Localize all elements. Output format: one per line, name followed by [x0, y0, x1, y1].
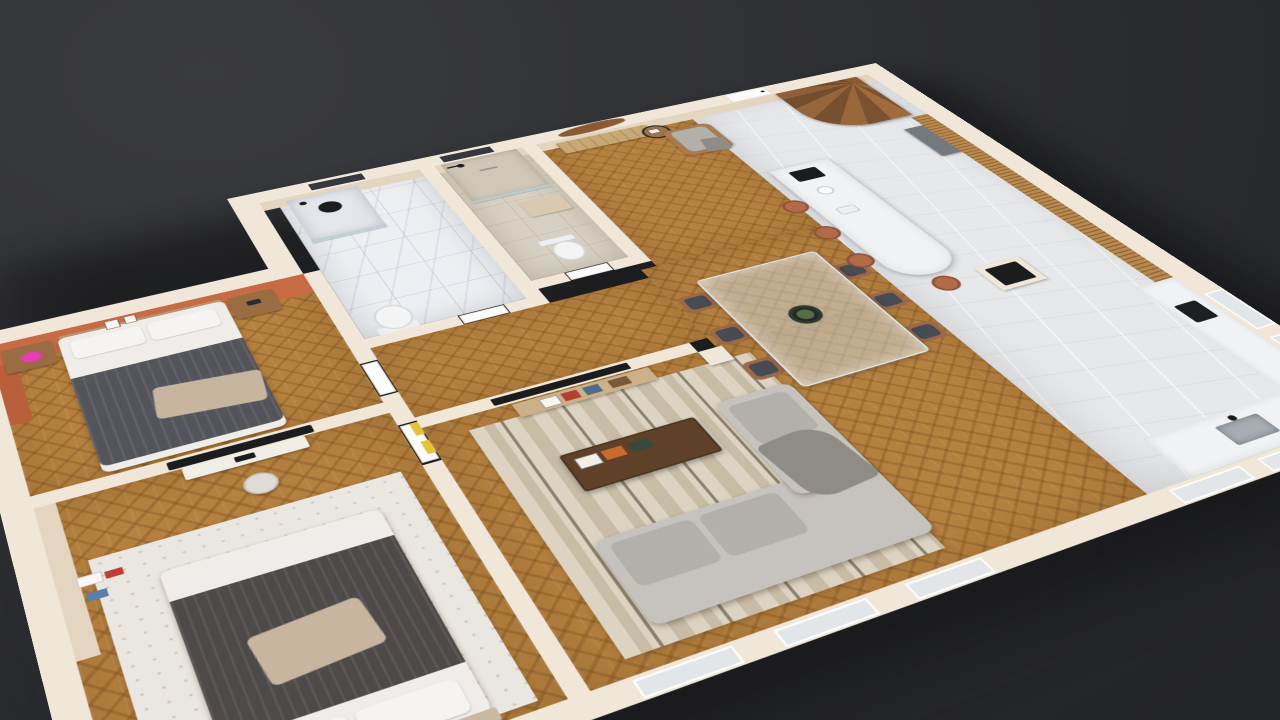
apartment-floor-plan: [0, 63, 1280, 720]
render-scene: [0, 0, 1280, 720]
